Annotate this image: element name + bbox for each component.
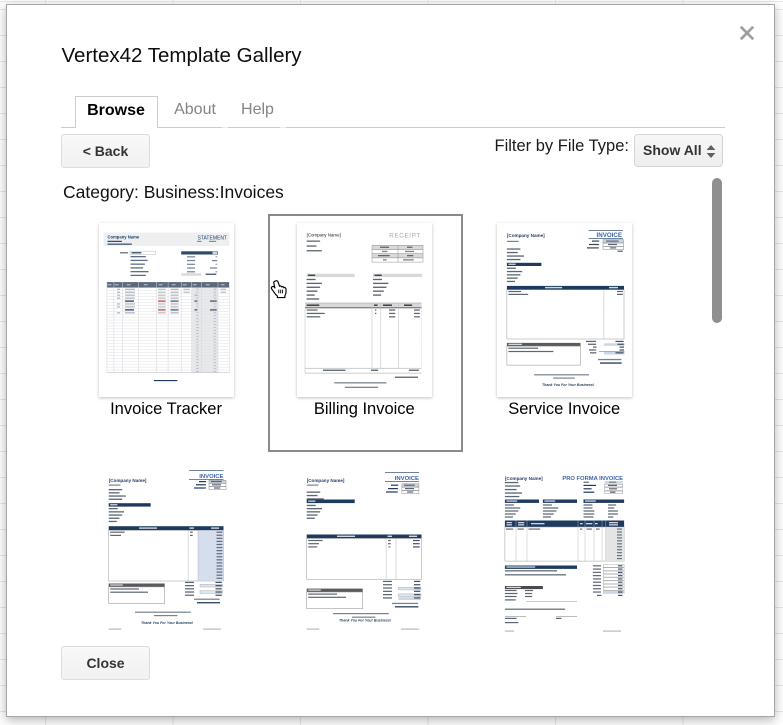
- svg-text:PRO FORMA INVOICE: PRO FORMA INVOICE: [563, 476, 624, 482]
- svg-text:Thank You For Your Business!: Thank You For Your Business!: [141, 621, 194, 625]
- svg-text:Company Name: Company Name: [107, 235, 139, 240]
- svg-text:Thank You For Your Business!: Thank You For Your Business!: [542, 382, 595, 386]
- svg-text:Thank You For Your Business!: Thank You For Your Business!: [339, 618, 392, 622]
- svg-text:STATEMENT: STATEMENT: [197, 235, 227, 241]
- svg-text:[Company Name]: [Company Name]: [507, 233, 545, 238]
- svg-text:[Company Name]: [Company Name]: [307, 478, 345, 483]
- svg-text:RECEIPT: RECEIPT: [389, 232, 421, 239]
- svg-text:[Company Name]: [Company Name]: [108, 478, 146, 483]
- svg-text:[Company Name]: [Company Name]: [306, 232, 340, 237]
- svg-text:[Company Name]: [Company Name]: [505, 476, 543, 481]
